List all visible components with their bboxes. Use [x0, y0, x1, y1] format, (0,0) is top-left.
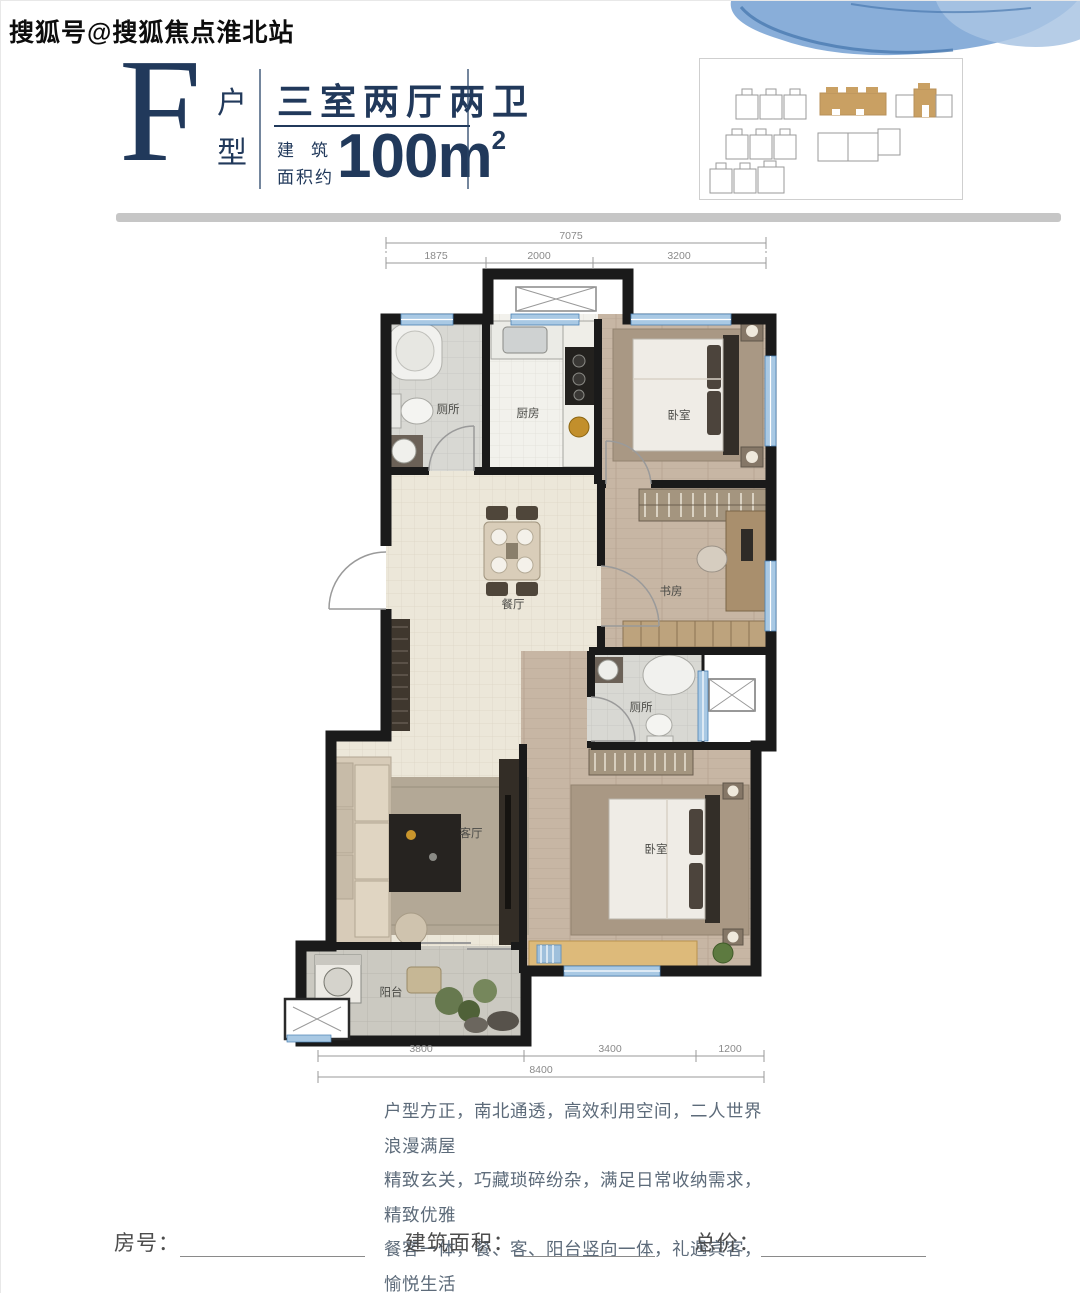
ac-shaft-bottom-left [285, 999, 349, 1042]
flyer-page: 搜狐号@搜狐焦点淮北站 F 户 型 三室两厅两卫 建筑 面积约 100m2 [0, 0, 1080, 1293]
total-price-blank-line [761, 1236, 926, 1257]
room-label-balcony: 阳台 [380, 985, 403, 999]
entry-cabinet [390, 619, 410, 731]
dim-bottom-seg1: 3800 [409, 1043, 433, 1055]
description-line: 户型方正，南北通透，高效利用空间，二人世界浪漫满屋 [384, 1094, 764, 1163]
header-divider-left [259, 69, 261, 189]
dim-bottom-total: 8400 [529, 1064, 553, 1076]
site-plan-building [726, 129, 796, 159]
description: 户型方正，南北通透，高效利用空间，二人世界浪漫满屋 精致玄关，巧藏琐碎纷杂，满足… [384, 1094, 764, 1293]
built-area-field: 建筑面积： [405, 1227, 655, 1257]
wardrobe-bedroom2 [589, 749, 693, 775]
room-number-blank-line [180, 1236, 365, 1257]
dim-top-seg3: 3200 [667, 250, 691, 262]
area-label: 建筑 面积约 [277, 137, 345, 191]
room-label-bath1: 厕所 [437, 403, 460, 416]
bedroom1-furniture [613, 321, 763, 467]
built-area-label: 建筑面积： [405, 1232, 515, 1255]
room-label-kitchen: 厨房 [517, 407, 540, 420]
unit-type-label: 户 型 [217, 79, 247, 179]
site-plan-highlighted-building [896, 83, 952, 117]
dim-top-total: 7075 [559, 230, 583, 242]
room-label-dining: 餐厅 [502, 597, 525, 611]
site-plan-svg [700, 59, 962, 199]
header: F 户 型 三室两厅两卫 建筑 面积约 100m2 [119, 59, 679, 209]
room-label-study: 书房 [660, 585, 683, 598]
dim-top-seg2: 2000 [527, 250, 551, 262]
site-plan-highlighted-building [820, 87, 886, 115]
hall-floor [521, 651, 591, 747]
room-label-living: 客厅 [460, 826, 483, 840]
ac-shaft-middle [709, 679, 755, 711]
ac-shaft-top [516, 287, 596, 311]
floor-plan: 厕所 厨房 卧室 书房 餐厅 厕所 客厅 卧室 阳台 7075 1875 200… [271, 229, 791, 1089]
layout-title: 三室两厅两卫 [277, 73, 535, 125]
site-plan-building [710, 161, 784, 193]
unit-letter: F [119, 37, 201, 185]
section-divider-bar [116, 213, 1061, 222]
area-value: 100m2 [337, 121, 505, 192]
header-divider-right [467, 69, 469, 189]
living-furniture [333, 757, 529, 949]
dim-top-seg1: 1875 [424, 250, 448, 262]
footer-form: 房号： 建筑面积： 总价： [114, 1227, 994, 1257]
total-price-field: 总价： [695, 1227, 926, 1257]
dim-bottom-seg2: 3400 [598, 1043, 622, 1055]
room-label-bath2: 厕所 [630, 701, 653, 714]
site-plan-keymap [699, 58, 963, 200]
description-line: 精致玄关，巧藏琐碎纷杂，满足日常收纳需求，精致优雅 [384, 1163, 764, 1232]
site-plan-building [736, 89, 806, 119]
site-plan-building [818, 129, 900, 161]
room-label-bedroom1: 卧室 [668, 408, 691, 422]
dim-bottom-seg3: 1200 [718, 1043, 742, 1055]
built-area-blank-line [515, 1236, 655, 1257]
room-label-bedroom2: 卧室 [645, 842, 668, 856]
room-number-label: 房号： [114, 1232, 180, 1255]
room-number-field: 房号： [114, 1227, 365, 1257]
area-superscript: 2 [492, 125, 505, 155]
total-price-label: 总价： [695, 1232, 761, 1255]
